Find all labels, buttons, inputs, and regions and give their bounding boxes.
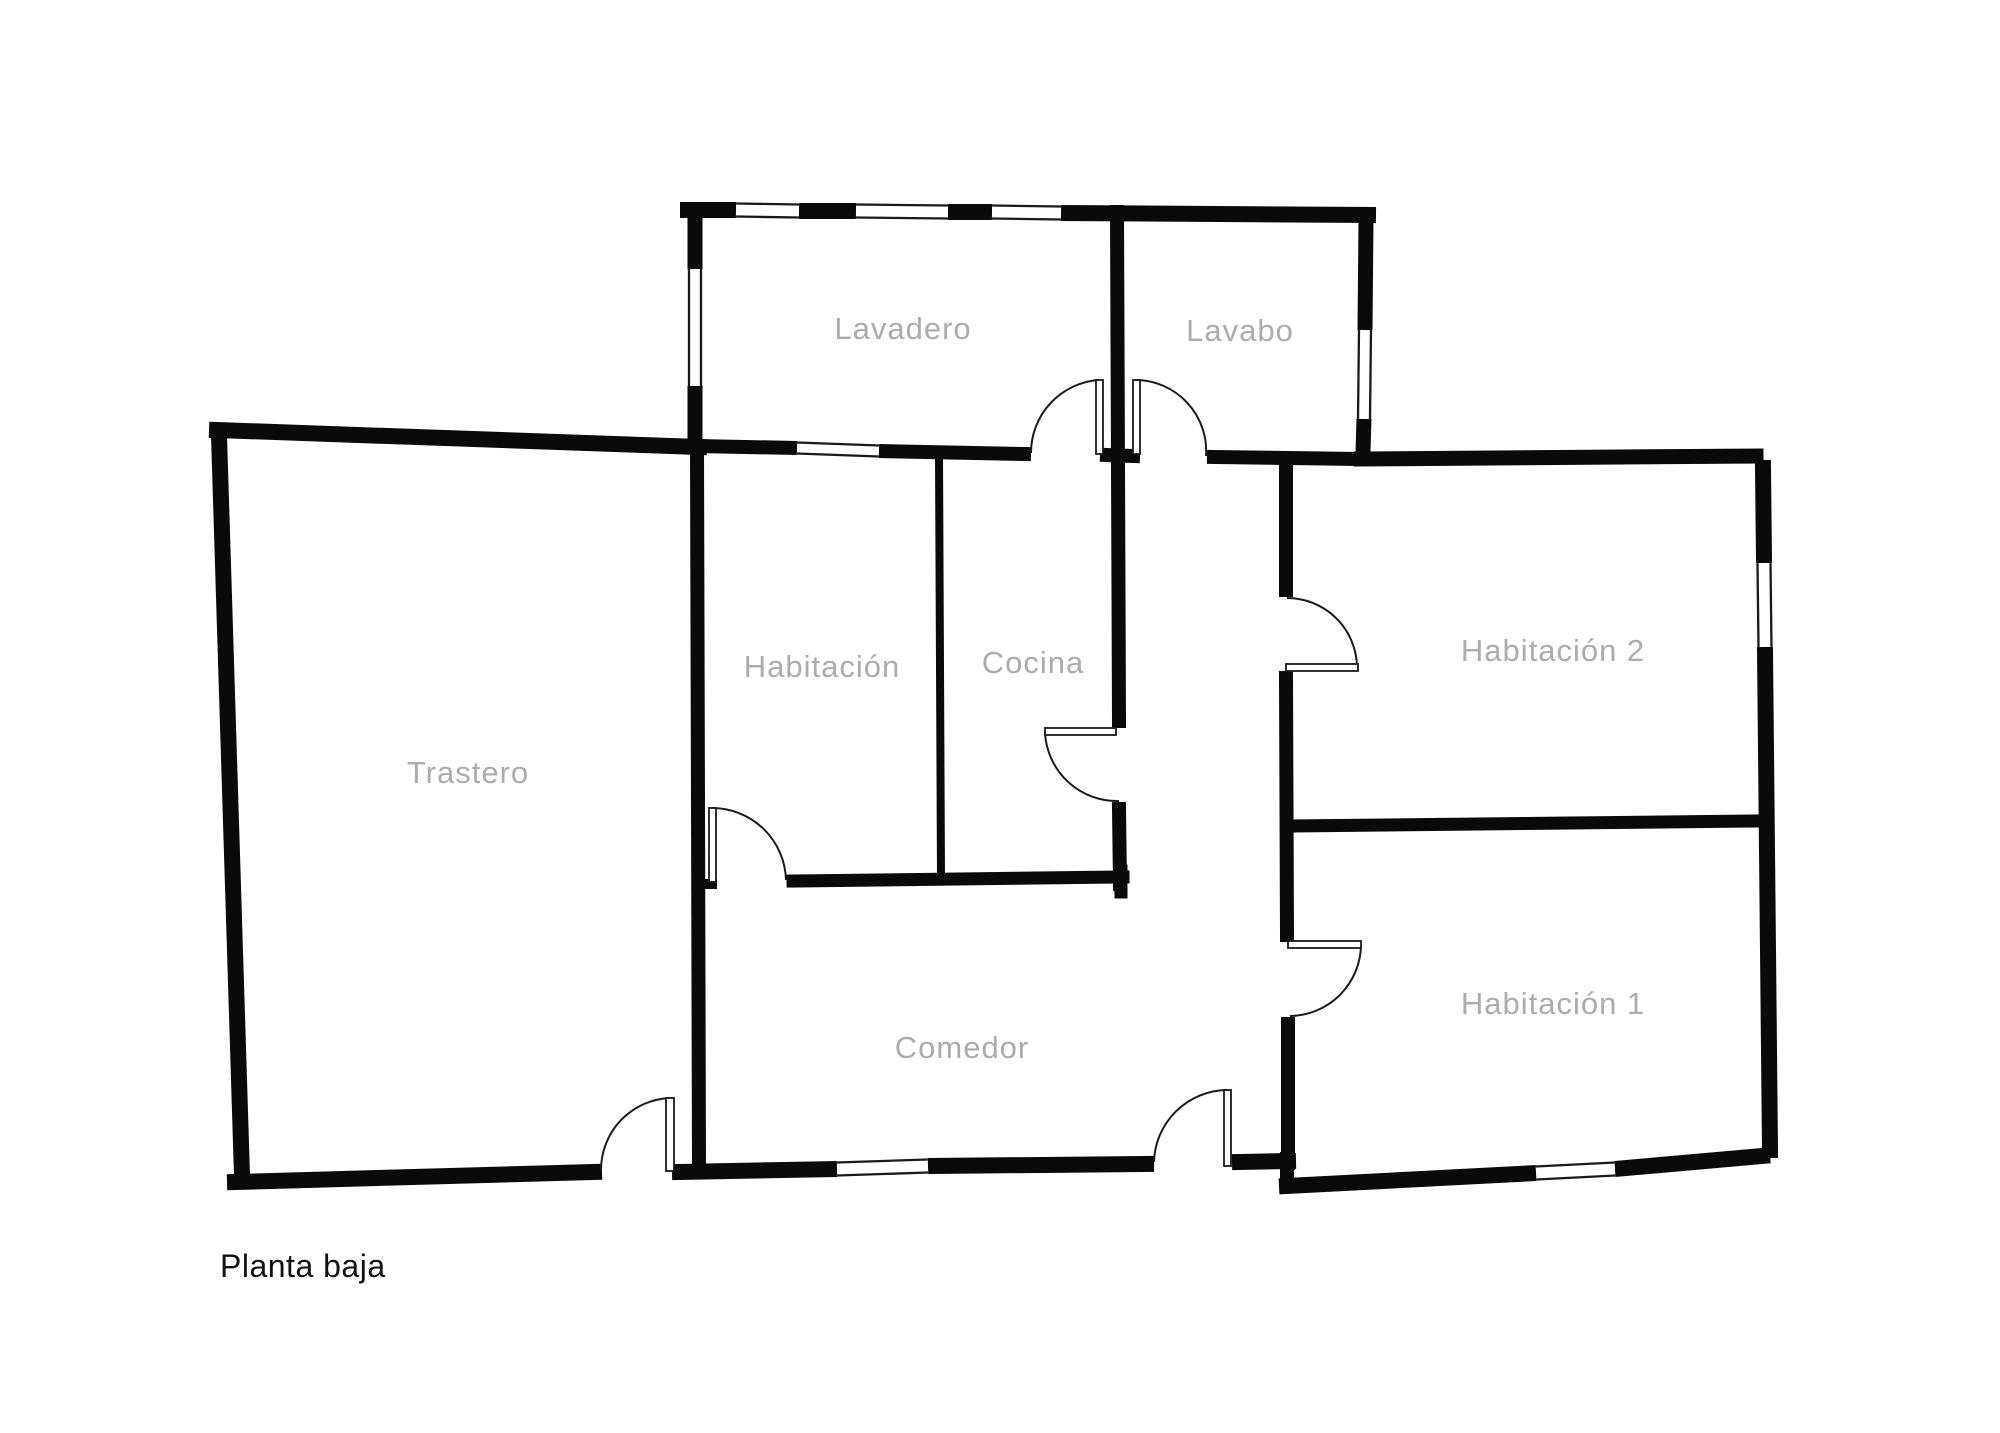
wall [217,430,699,447]
window-clear [1536,1169,1615,1173]
window-icon [992,206,1061,207]
wall [1365,219,1366,330]
room-label-comedor: Comedor [895,1030,1030,1065]
window-clear [992,212,1061,213]
wall [793,877,1123,881]
wall [1286,678,1287,935]
wall [939,456,941,877]
lavabo-door-leaf-icon [1133,380,1140,454]
cocina-door-leaf-icon [1045,728,1116,735]
wall [1287,821,1758,826]
habitacion2-door-leaf-icon [1286,664,1358,671]
lavabo-door-swing-arc-icon [1136,380,1206,456]
wall [697,449,699,1166]
floorplan: LavaderoLavaboHabitaciónCocinaTrasteroHa… [0,0,2000,1433]
wall [1061,213,1368,215]
floorplan-svg: LavaderoLavaboHabitaciónCocinaTrasteroHa… [0,0,2000,1433]
wall [1287,1173,1536,1186]
wall [235,1172,594,1182]
entrance-door-swing-arc-icon [1154,1090,1227,1162]
wall [1765,651,1770,1150]
window-icon [736,216,799,217]
wall [1615,1156,1762,1169]
room-label-lavabo: Lavabo [1186,313,1294,348]
window-icon [992,218,1061,219]
wall [1117,212,1119,721]
room-label-trastero: Trastero [407,755,529,790]
wall [697,446,797,448]
trastero-door-leaf-icon [666,1098,674,1171]
window-clear [1764,563,1765,647]
lavadero-door-leaf-icon [1096,380,1103,454]
room-label-cocina: Cocina [982,645,1085,680]
window-clear [856,211,948,212]
window-icon [1770,563,1771,647]
wall [1763,468,1764,560]
window-icon [1758,563,1759,647]
habitacion1-door-swing-arc-icon [1290,945,1361,1016]
floor-title: Planta baja [220,1248,386,1285]
habitacion-door-leaf-icon [709,808,716,882]
room-label-lavadero: Lavadero [834,311,971,346]
window-clear [837,1166,928,1169]
room-label-habitacion-2: Habitación 2 [1461,633,1645,668]
window-icon [736,204,799,205]
room-label-habitacion-1: Habitación 1 [1461,986,1645,1021]
lavadero-door-swing-arc-icon [1031,380,1099,453]
wall [879,451,1024,454]
cocina-door-swing-arc-icon [1045,732,1119,801]
window-clear [797,448,879,451]
wall [219,436,242,1176]
window-icon [856,217,948,218]
wall [1363,419,1364,452]
room-label-habitacion: Habitación [744,649,900,684]
wall [928,1164,1146,1166]
window-clear [736,210,799,211]
window-icon [1370,330,1371,419]
window-icon [856,205,948,206]
trastero-door-swing-arc-icon [601,1098,670,1170]
habitacion2-door-swing-arc-icon [1287,598,1357,667]
window-icon [1358,330,1359,419]
entrance-door-leaf-icon [1224,1090,1231,1166]
habitacion-door-swing-arc-icon [712,808,786,880]
window-clear [1364,330,1365,419]
habitacion1-door-leaf-icon [1288,941,1361,948]
wall [1361,456,1756,459]
